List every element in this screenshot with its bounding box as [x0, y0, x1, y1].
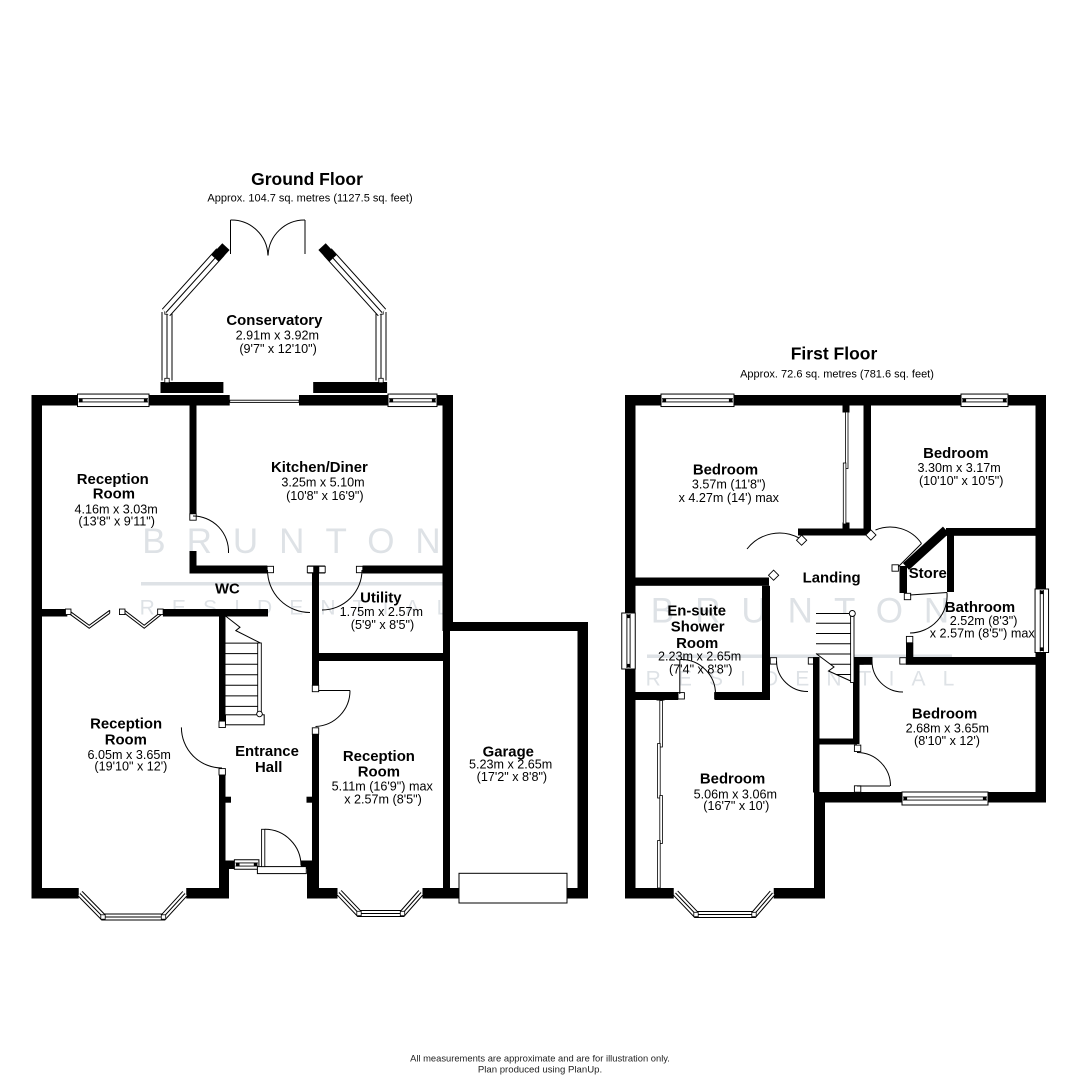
svg-text:3.25m x 5.10m: 3.25m x 5.10m: [281, 475, 364, 489]
svg-text:(19'10" x 12'): (19'10" x 12'): [94, 760, 167, 774]
svg-text:(10'8" x 16'9"): (10'8" x 16'9"): [286, 489, 363, 503]
svg-text:Landing: Landing: [803, 571, 861, 587]
svg-text:(10'10" x 10'5"): (10'10" x 10'5"): [919, 474, 1003, 488]
svg-text:(9'7" x 12'10"): (9'7" x 12'10"): [239, 342, 316, 356]
svg-text:Approx. 104.7 sq. metres (1127: Approx. 104.7 sq. metres (1127.5 sq. fee…: [207, 193, 412, 205]
svg-text:Ground Floor: Ground Floor: [251, 169, 363, 189]
svg-text:Entrance: Entrance: [235, 744, 299, 760]
svg-text:Shower: Shower: [671, 620, 725, 636]
svg-text:x 2.57m (8'5") max: x 2.57m (8'5") max: [930, 627, 1036, 641]
svg-text:(8'10" x 12'): (8'10" x 12'): [914, 734, 980, 748]
svg-text:(13'8" x 9'11"): (13'8" x 9'11"): [78, 515, 155, 529]
svg-text:Approx. 72.6 sq. metres (781.6: Approx. 72.6 sq. metres (781.6 sq. feet): [740, 369, 934, 381]
svg-text:x 4.27m (14') max: x 4.27m (14') max: [679, 491, 780, 505]
svg-text:Reception: Reception: [343, 749, 415, 765]
svg-text:Bedroom: Bedroom: [923, 446, 988, 462]
svg-text:All measurements are approxima: All measurements are approximate and are…: [410, 1053, 670, 1064]
svg-text:Room: Room: [105, 732, 147, 748]
svg-text:En-suite: En-suite: [667, 604, 726, 620]
svg-text:Room: Room: [93, 486, 135, 502]
svg-text:Room: Room: [358, 765, 400, 781]
svg-text:WC: WC: [215, 582, 240, 598]
svg-text:2.91m x 3.92m: 2.91m x 3.92m: [236, 329, 319, 343]
svg-text:3.57m (11'8"): 3.57m (11'8"): [692, 478, 766, 492]
svg-text:Bedroom: Bedroom: [912, 707, 977, 723]
svg-text:(17'2" x 8'8"): (17'2" x 8'8"): [477, 770, 547, 784]
svg-text:Bedroom: Bedroom: [700, 772, 765, 788]
svg-text:Kitchen/Diner: Kitchen/Diner: [271, 460, 368, 476]
svg-text:Reception: Reception: [90, 716, 162, 732]
svg-text:(5'9" x 8'5"): (5'9" x 8'5"): [351, 618, 414, 632]
svg-text:Bedroom: Bedroom: [693, 463, 758, 479]
svg-text:(16'7" x 10'): (16'7" x 10'): [703, 799, 769, 813]
svg-text:Store: Store: [909, 566, 947, 582]
svg-text:Utility: Utility: [360, 591, 402, 607]
svg-text:(7'4" x 8'8"): (7'4" x 8'8"): [669, 662, 732, 676]
svg-text:Plan produced using PlanUp.: Plan produced using PlanUp.: [478, 1065, 602, 1076]
svg-text:x 2.57m (8'5"): x 2.57m (8'5"): [344, 792, 422, 806]
svg-text:Hall: Hall: [255, 760, 282, 776]
svg-text:First Floor: First Floor: [791, 344, 878, 364]
svg-text:Conservatory: Conservatory: [226, 313, 323, 329]
